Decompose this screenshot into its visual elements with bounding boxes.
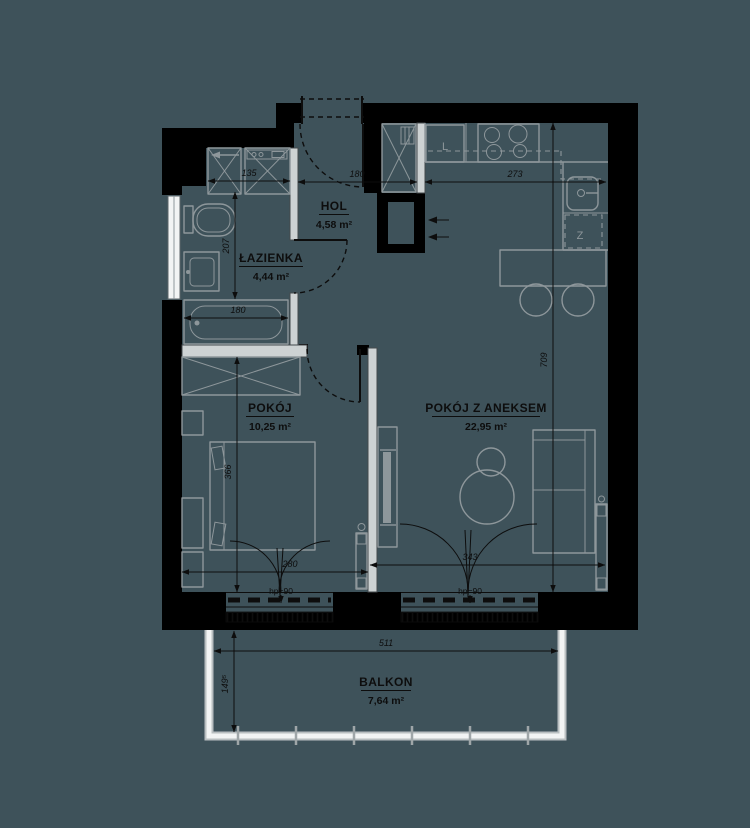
kitchen-chair-1 [520, 284, 552, 316]
living-room [378, 427, 607, 590]
bedroom-threshold-hatch [226, 612, 333, 622]
toilet-bowl [193, 204, 235, 236]
room-area-lazienka: 4,44 m² [253, 271, 290, 283]
dim-text-hol: 180 [349, 169, 364, 179]
dim-text-bathtub: 180 [230, 305, 245, 315]
wall-top-left [162, 128, 294, 148]
sill-text-bedroom: hp=90 [269, 586, 293, 596]
toilet-bowl-inner [197, 208, 230, 232]
floor-plan-svg: L Z [0, 0, 750, 828]
partition-bathroom-upper [290, 148, 298, 240]
wall-top-before-entrance [276, 103, 302, 123]
dryer-knob-1 [252, 153, 256, 157]
sill-text-living: hp=90 [458, 586, 482, 596]
coffee-table-large [460, 470, 514, 524]
shaft-arrow-head-1 [428, 217, 437, 224]
dim-text-living-depth: 709 [539, 352, 549, 367]
bed [210, 442, 315, 550]
nightstand-bottom [182, 552, 203, 587]
dishwasher [565, 215, 602, 248]
tv-unit [378, 427, 397, 547]
dim-text-balcony-width: 511 [379, 638, 393, 648]
dim-text-living-width: 343 [462, 552, 477, 562]
dim-text-bedroom-width: 280 [281, 559, 297, 569]
partition-bathroom-lower [290, 293, 298, 346]
room-name-balkon: BALKON [359, 675, 413, 689]
bedroom-radiator-body [356, 533, 367, 589]
bedroom-radiator [356, 524, 367, 590]
living-radiator-top [597, 505, 606, 516]
washer-arrow-head [211, 152, 220, 159]
bathroom-window [162, 195, 182, 300]
partition-bathroom-bedroom [182, 345, 307, 357]
room-name-pokoj: POKÓJ [248, 400, 292, 415]
dim-text-bathroom-depth: 207 [221, 238, 231, 255]
bathroom-sink-basin [190, 258, 214, 286]
stove-burner-3 [487, 145, 502, 160]
wall-pillar [182, 147, 206, 186]
kitchen-chair-2 [562, 284, 594, 316]
bedroom-door-swing [307, 349, 360, 402]
dim-text-niche: 135 [241, 168, 257, 178]
bathroom-sink-tap [186, 270, 190, 274]
toilet-tank [184, 206, 193, 233]
bedroom-balcony-door [226, 541, 333, 622]
room-area-aneks: 22,95 m² [465, 421, 508, 433]
living-radiator-body [596, 504, 607, 590]
wall-left-lower [162, 300, 182, 630]
living-balcony-door [400, 524, 538, 622]
room-name-lazienka: ŁAZIENKA [239, 251, 303, 265]
room-area-pokoj: 10,25 m² [249, 421, 292, 433]
room-area-balkon: 7,64 m² [368, 695, 405, 707]
kitchen-tap [578, 190, 585, 197]
living-radiator [596, 496, 607, 590]
room-area-hol: 4,58 m² [316, 219, 353, 231]
living-radiator-bottom [597, 578, 606, 589]
wall-top-right [362, 103, 638, 123]
living-balcony-swing-right [468, 524, 537, 592]
room-name-aneks: POKÓJ Z ANEKSEM [425, 400, 547, 415]
dresser-left [182, 498, 203, 548]
dim-text-balcony-depth: 149⁵ [220, 674, 230, 693]
living-threshold-hatch [401, 612, 538, 622]
shaft-arrow-head-2 [428, 234, 437, 241]
shaft-arrows [428, 217, 449, 241]
dishwasher-label: Z [577, 230, 584, 242]
stove-burner-1 [485, 128, 500, 143]
sofa [533, 430, 595, 553]
shaft-hole [388, 202, 414, 244]
entrance-opening [302, 103, 362, 123]
bathtub-tap [195, 321, 200, 326]
dryer-knob-2 [259, 153, 263, 157]
bedroom-radiator-valve [358, 524, 365, 531]
bathroom [184, 148, 347, 344]
stove-burner-2 [509, 125, 527, 143]
wall-right [608, 103, 638, 630]
bedroom-radiator-top [357, 534, 366, 544]
tv-screen [383, 452, 391, 523]
dim-text-bedroom-depth: 366 [223, 464, 233, 479]
bedroom-balcony-swing-left [230, 541, 281, 592]
bedroom-radiator-bottom [357, 578, 366, 588]
living-radiator-valve [599, 496, 605, 502]
dim-text-kitchen: 273 [506, 169, 522, 179]
living-balcony-swing-left [400, 524, 468, 592]
wall-cap-partition [357, 345, 369, 355]
coffee-table-small [477, 448, 505, 476]
nightstand-top [182, 411, 203, 435]
bedroom [182, 349, 367, 589]
partition-bedroom-living [368, 348, 377, 592]
kitchen: L Z [425, 123, 608, 316]
partition-hol-kitchen [417, 123, 425, 193]
room-name-hol: HOL [321, 199, 348, 213]
